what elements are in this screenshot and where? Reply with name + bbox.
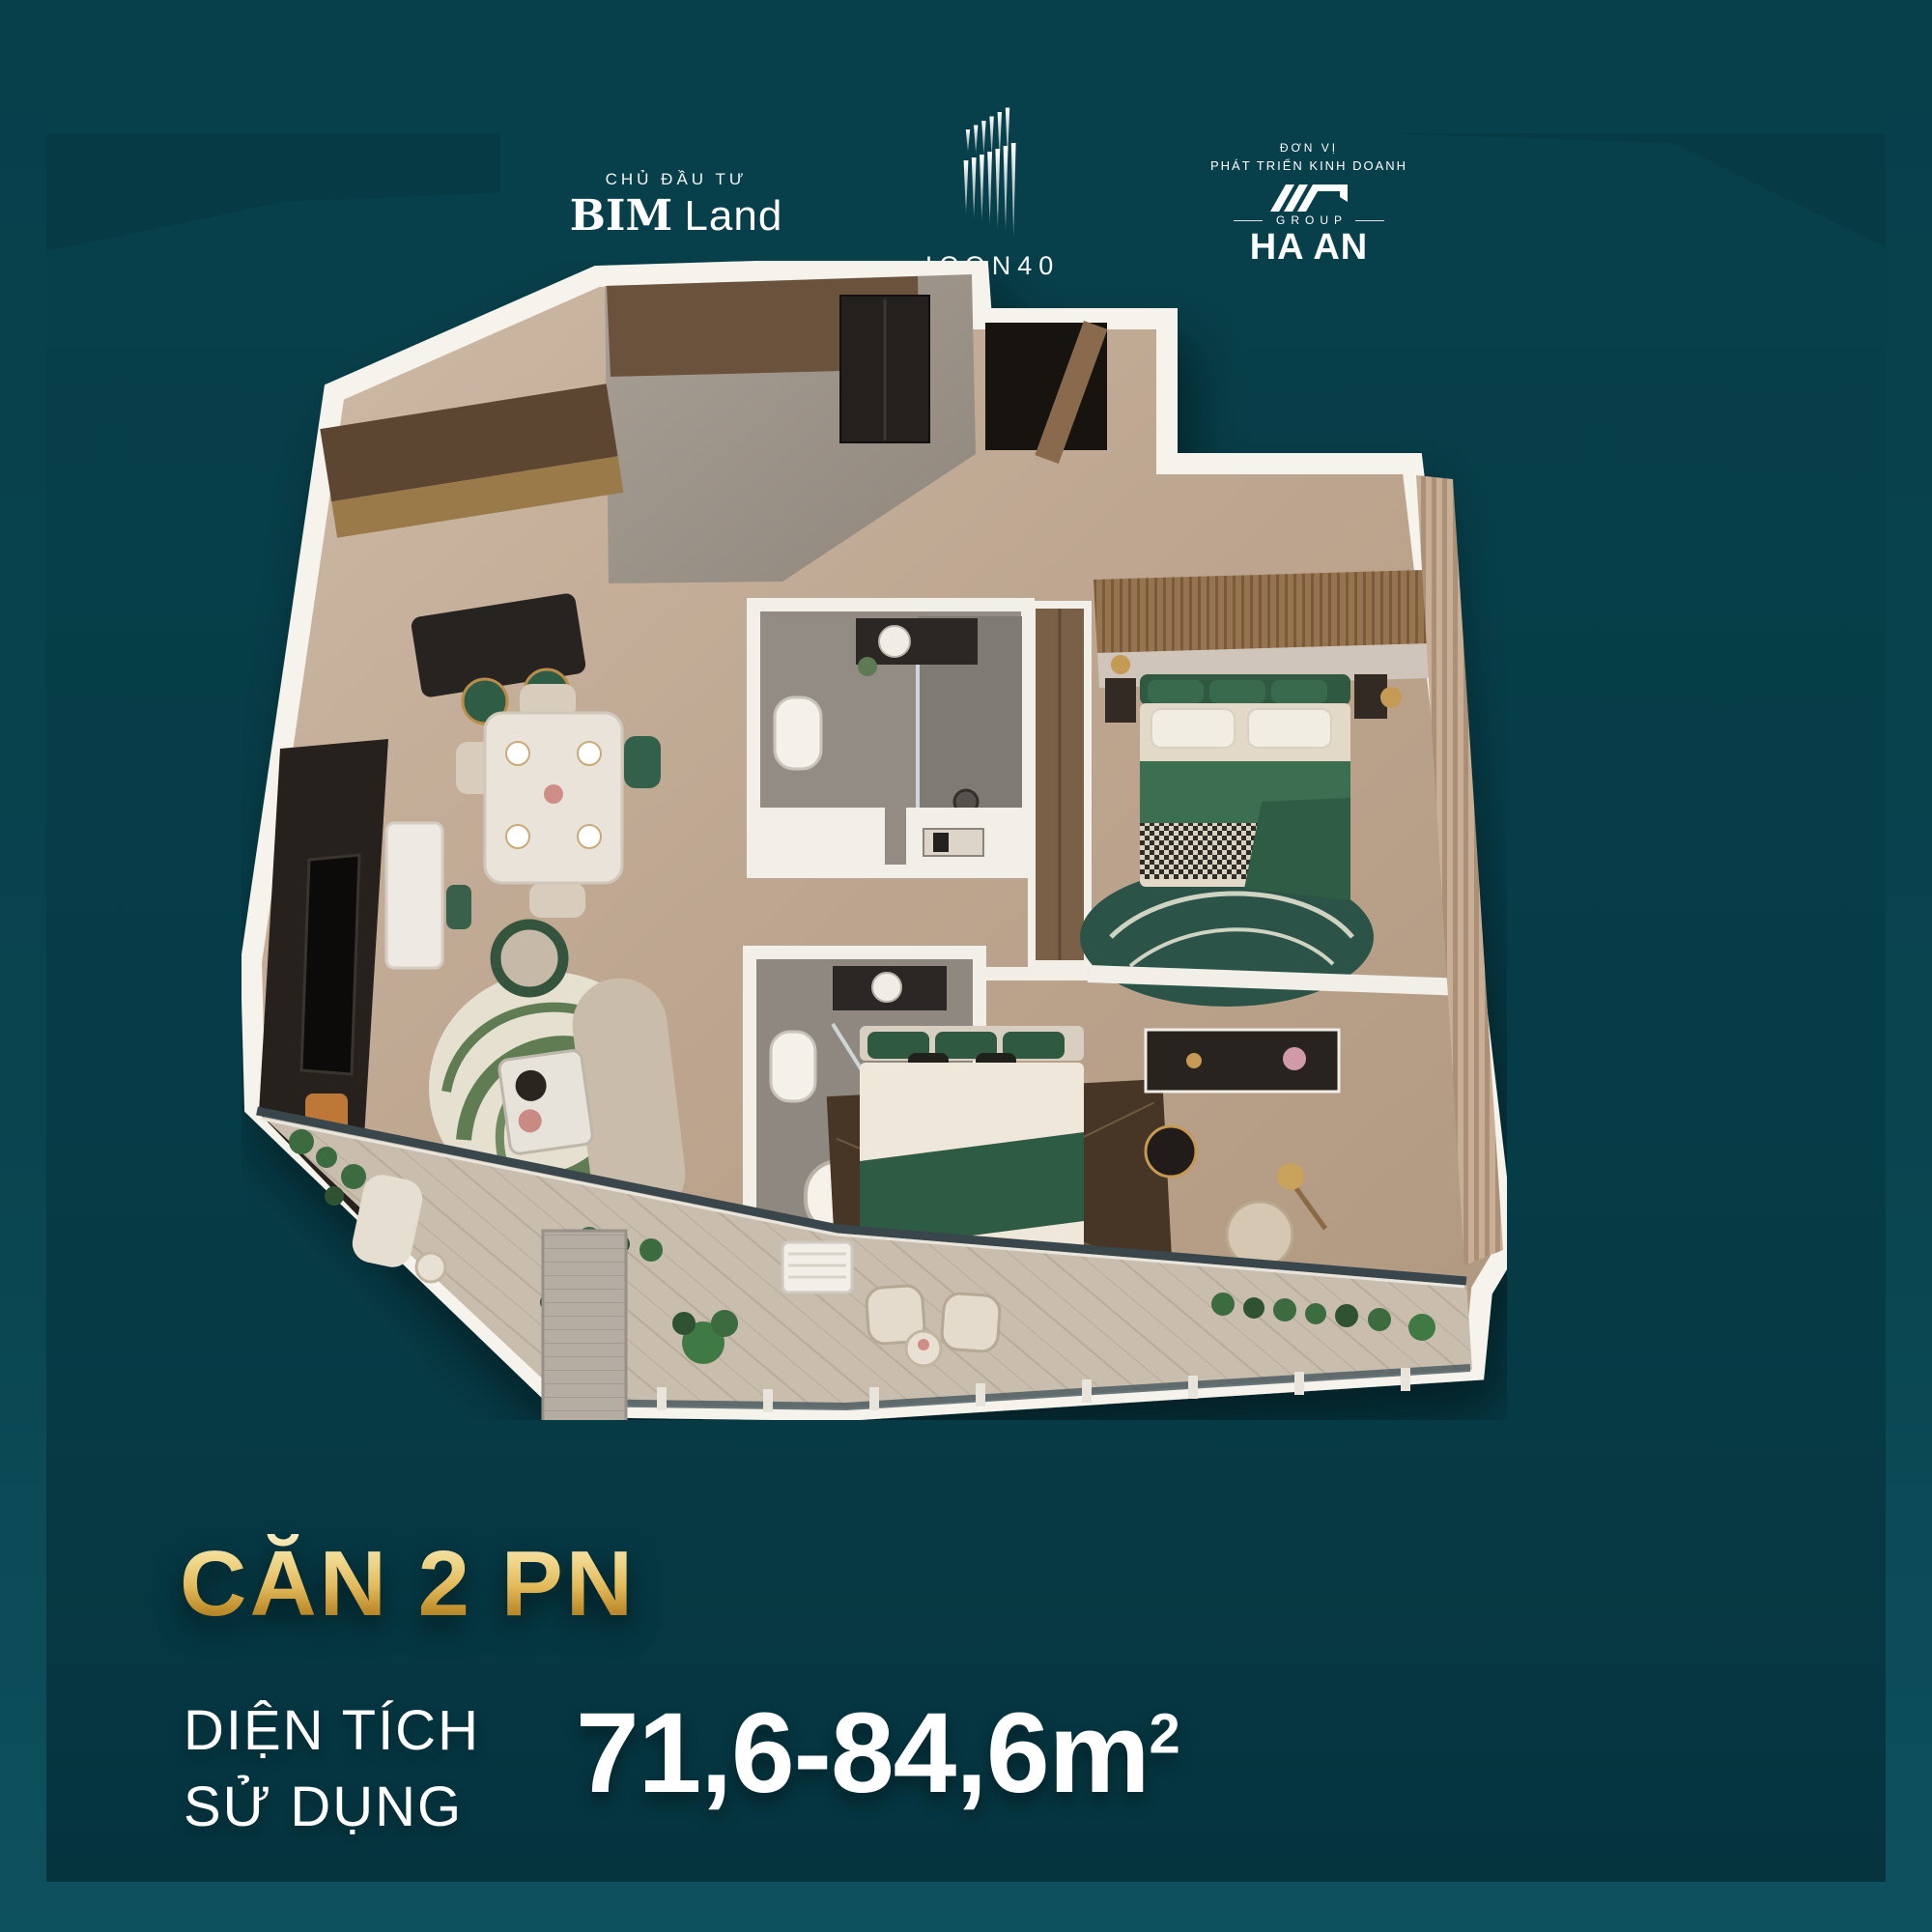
haan-roof-icon [1264,179,1353,212]
group-rule-right [1355,220,1384,221]
haan-group-row: GROUP [1205,213,1413,227]
area-value: 71,6-84,6m2 [576,1696,1179,1810]
wall-art [923,829,983,856]
project-logo: ICON40 [893,100,1086,281]
area-label-line2: SỬ DỤNG [184,1776,463,1838]
flowers [1283,1047,1306,1070]
walkway-ledge [543,1231,626,1420]
business-unit-eyebrow-2: PHÁT TRIỂN KINH DOANH [1205,158,1413,173]
bath-plant [858,657,877,676]
poster: { "colors": { "background_top": "#07404B… [0,0,1932,1932]
sink-2 [872,973,901,1002]
background-deco-right [1383,133,1886,249]
vanity-1 [856,618,978,665]
balcony-armchair [941,1293,1001,1352]
entry [985,321,1107,464]
area-value-number: 71,6-84,6m [576,1690,1150,1817]
piano [386,823,442,968]
developer-eyebrow: CHỦ ĐẦU TƯ [541,170,811,189]
unit-type-title: CĂN 2 PN [180,1534,636,1634]
accent-armchair [496,924,563,992]
pony-wall [757,808,885,867]
developer-name-bold: BIM [570,191,672,241]
dresser [1146,1030,1339,1092]
ac-unit [782,1242,852,1293]
developer-logo: CHỦ ĐẦU TƯ BIM Land [541,170,811,238]
area-label-line1: DIỆN TÍCH [184,1699,480,1762]
icon40-building-icon [961,100,1017,243]
bedside-lamp [1111,655,1130,674]
bim-land-wordmark: BIM Land [541,195,811,238]
business-unit-eyebrow-1: ĐƠN VỊ [1205,141,1413,155]
bathroom-1 [753,605,1028,871]
piano-bench [446,885,471,929]
background-deco-left [46,133,500,253]
toilet-1 [775,697,821,769]
group-rule-left [1234,220,1263,221]
sink-1 [879,626,910,657]
business-unit-group-label: GROUP [1270,213,1348,227]
headboard-slat-wall [1094,570,1430,653]
business-unit-logo: ĐƠN VỊ PHÁT TRIỂN KINH DOANH GROUP HA AN [1205,141,1413,269]
bed-1 [1140,674,1350,900]
area-label: DIỆN TÍCH SỬ DỤNG [184,1692,480,1845]
floor-plan [241,261,1507,1420]
toilet-2 [771,1032,815,1101]
coffee-table [498,1049,594,1154]
bedside-lamp [1380,687,1402,708]
nightstand [1105,678,1136,723]
developer-name-light: Land [684,192,782,240]
area-value-superscript: 2 [1150,1703,1179,1766]
tv-screen [301,855,359,1074]
side-table [1146,1126,1196,1177]
